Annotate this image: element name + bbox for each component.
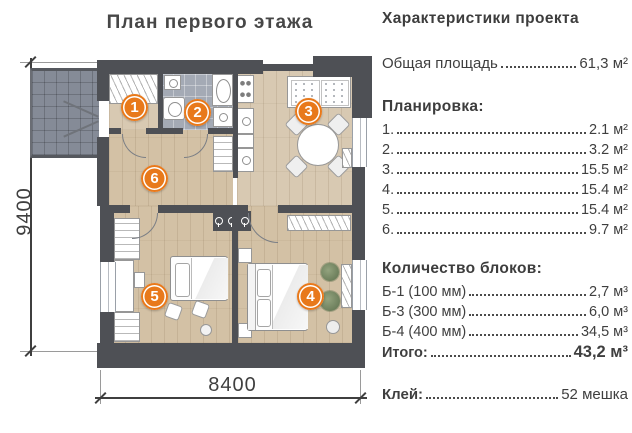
width-dimension-label: 8400: [170, 374, 295, 397]
bathroom-sink: [216, 79, 231, 103]
kitchen-sink: [237, 108, 254, 134]
window-room5: [100, 262, 116, 312]
room-badge-2: 2: [184, 99, 211, 126]
washing-machine: [213, 107, 233, 127]
wall-hall-room3: [233, 134, 238, 178]
block-row: Б-4 (400 мм) 34,5 м³: [382, 322, 628, 342]
dot-leader: [397, 131, 586, 134]
room4-radiator: [341, 264, 352, 308]
glue-label: Клей:: [382, 385, 423, 405]
kitchen-counter: [237, 134, 254, 148]
layout-row: 5. 15.4 м²: [382, 200, 628, 220]
dot-leader: [397, 211, 578, 214]
wall-hall-top-a: [109, 128, 121, 134]
window-room3: [352, 118, 367, 167]
block-row: Б-3 (300 мм) 6,0 м³: [382, 302, 628, 322]
dining-table: [297, 124, 339, 166]
dot-leader: [397, 171, 578, 174]
plant-icon: [321, 263, 339, 281]
right-wall-mid: [352, 167, 365, 260]
screenshot-root: План первого этажа: [0, 0, 632, 433]
room-badge-1: 1: [121, 94, 148, 121]
total-area-row: Общая площадь 61,3 м²: [382, 54, 628, 74]
room5-desk: [114, 260, 134, 312]
wall-mid-horizontal-b: [158, 205, 248, 213]
dot-leader: [469, 333, 578, 336]
layout-row: 1. 2.1 м²: [382, 120, 628, 140]
blocks-heading: Количество блоков:: [382, 260, 628, 278]
window-room4: [352, 260, 367, 310]
glue-value: 52 мешка: [561, 385, 628, 405]
dot-leader: [431, 354, 571, 357]
bathroom-washbasin: [164, 75, 181, 90]
dot-leader: [397, 191, 578, 194]
room-badge-6: 6: [141, 165, 168, 192]
floor-plan: 1 2 3 4 5 6 9400 8400: [0, 0, 380, 433]
right-wall-lower: [352, 310, 365, 345]
kitchen-appliance: [237, 148, 254, 172]
left-wall-lower-b: [100, 312, 114, 345]
room-badge-4: 4: [297, 283, 324, 310]
toilet-bowl: [168, 102, 182, 117]
bed-pillow: [257, 299, 271, 327]
dot-leader: [469, 313, 586, 316]
room3-radiator: [342, 148, 352, 168]
dot-leader: [397, 151, 586, 154]
hallway-shelving: [213, 136, 233, 172]
bathroom-counter: [212, 74, 233, 106]
kitchen-stove: [237, 75, 254, 103]
layout-row: 3. 15.5 м²: [382, 160, 628, 180]
wall-room1-room2: [158, 72, 163, 128]
layout-heading: Планировка:: [382, 98, 628, 116]
total-area-label: Общая площадь: [382, 54, 498, 74]
bed-headboard: [248, 264, 256, 330]
left-wall-mid: [97, 137, 109, 206]
room-badge-3: 3: [295, 98, 322, 125]
block-row: Б-1 (100 мм) 2,7 м³: [382, 282, 628, 302]
top-wall-left: [97, 60, 263, 74]
single-bed: [170, 256, 228, 301]
bathroom-toilet: [163, 97, 185, 120]
left-wall-lower-a: [100, 206, 114, 262]
bottom-wall: [97, 343, 365, 368]
wall-mid-horizontal-a: [109, 205, 130, 213]
room-badge-5: 5: [141, 283, 168, 310]
panel-heading: Характеристики проекта: [382, 10, 628, 28]
bed-blanket: [191, 258, 228, 299]
wall-room2-right: [233, 72, 238, 134]
layout-row: 2. 3.2 м²: [382, 140, 628, 160]
room5-side-table: [134, 272, 145, 288]
wall-room5-room4: [232, 213, 238, 343]
dot-leader: [469, 293, 586, 296]
left-wall-upper: [97, 60, 109, 101]
wall-hall-top-b: [146, 128, 183, 134]
bed-pillow: [257, 269, 271, 297]
dot-leader: [426, 396, 558, 399]
room4-nightstand-top: [238, 248, 252, 263]
room5-wardrobe-bottom: [114, 312, 140, 342]
total-area-value: 61,3 м²: [579, 54, 628, 74]
sofa-cushion-right: [321, 80, 349, 106]
glue-row: Клей: 52 мешка: [382, 385, 628, 405]
room4-pouf: [326, 320, 340, 334]
wall-mid-horizontal-c: [278, 205, 353, 213]
room4-wardrobe: [287, 215, 351, 231]
dot-leader: [397, 231, 586, 234]
top-wall-window-lintel: [263, 64, 313, 71]
height-dimension-label: 9400: [14, 182, 37, 242]
bed-pillow: [175, 263, 190, 297]
layout-row: 4. 15.4 м²: [382, 180, 628, 200]
right-wall-upper: [352, 56, 372, 118]
total-blocks-row: Итого: 43,2 м³: [382, 342, 628, 363]
layout-row: 6. 9.7 м²: [382, 220, 628, 240]
desk-chair: [200, 324, 212, 336]
specs-panel: Характеристики проекта Общая площадь 61,…: [382, 10, 628, 405]
width-dimension-line: [95, 397, 367, 399]
hanger-icon: [215, 217, 223, 225]
dot-leader: [501, 65, 576, 68]
